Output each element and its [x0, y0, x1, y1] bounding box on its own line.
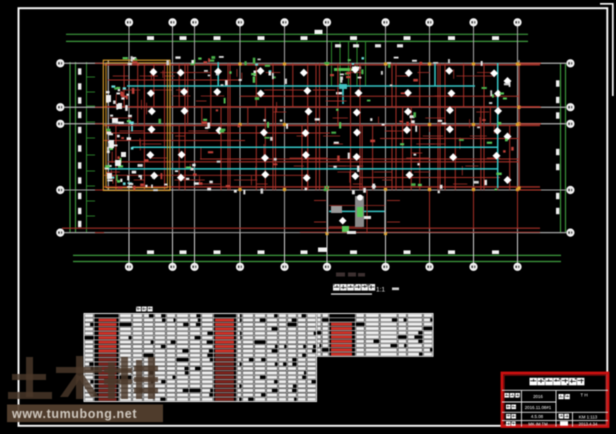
svg-text:T H: T H — [580, 392, 587, 397]
svg-text:MK IM TM: MK IM TM — [528, 421, 548, 426]
svg-text:2016: 2016 — [533, 394, 543, 399]
svg-text:2016.11.08#1: 2016.11.08#1 — [525, 405, 552, 410]
svg-text:1:1: 1:1 — [376, 287, 385, 294]
svg-text:www.tumubong.net: www.tumubong.net — [11, 407, 137, 421]
svg-text:KM 1:113: KM 1:113 — [579, 414, 598, 419]
svg-text:2013.4.34: 2013.4.34 — [579, 422, 598, 427]
svg-text:4.5.08: 4.5.08 — [531, 414, 544, 419]
